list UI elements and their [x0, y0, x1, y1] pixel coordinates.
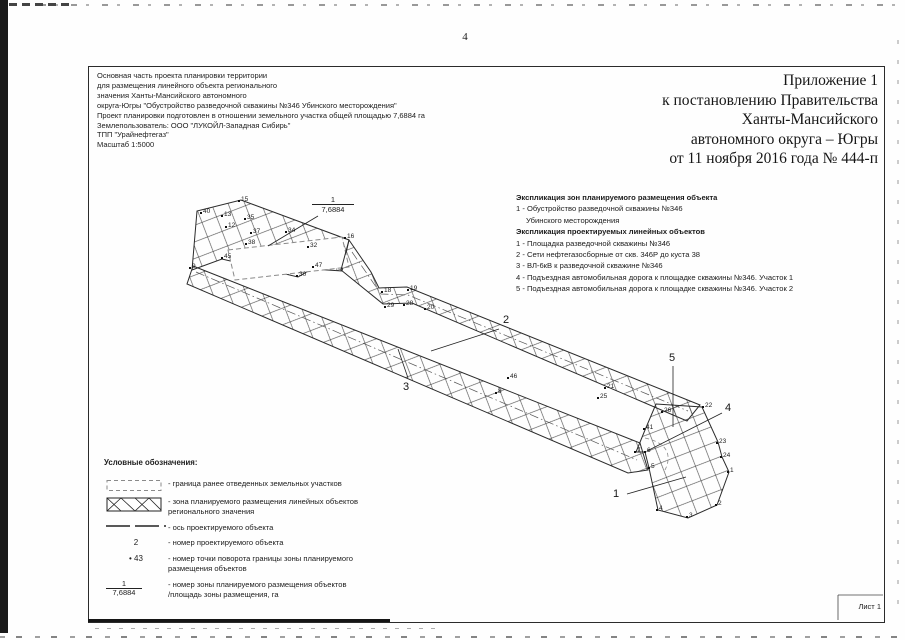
legend-label: - граница ранее отведенных земельных уча… [168, 479, 424, 490]
legend-label-line: - номер точки поворота границы зоны план… [168, 554, 424, 565]
zone-number: 1 [331, 195, 335, 204]
zone-area-label: 1 7,6884 [312, 195, 354, 214]
legend-row-axis: - ось проектируемого объекта [104, 523, 424, 534]
legend-block: Условные обозначения: - граница ранее от… [104, 458, 424, 606]
fraction-denominator: 7,6884 [106, 588, 142, 598]
legend-row-planned-zone: - зона планируемого размещения линейных … [104, 497, 424, 518]
legend-label: - номер зоны планируемого размещения объ… [168, 580, 424, 601]
legend-row-prior-boundary: - граница ранее отведенных земельных уча… [104, 479, 424, 492]
axis-line-swatch [104, 523, 168, 529]
legend-label-line: /площадь зоны размещения, га [168, 590, 424, 601]
turn-point-swatch: • 43 [104, 554, 168, 565]
legend-label: - зона планируемого размещения линейных … [168, 497, 424, 518]
zone-fraction-swatch: 1 7,6884 [104, 580, 168, 598]
legend-row-object-number: 2 - номер проектируемого объекта [104, 538, 424, 549]
hatched-rect-swatch [104, 497, 168, 512]
scanned-plan-page: 4 Основная часть проекта планировки терр… [0, 0, 905, 640]
legend-title: Условные обозначения: [104, 458, 424, 469]
leader-object-2 [431, 329, 499, 351]
zone-area-value: 7,6884 [312, 204, 354, 214]
well-pad-zone [636, 404, 729, 518]
object-number-swatch: 2 [104, 538, 168, 549]
fraction-numerator: 1 [106, 580, 142, 589]
legend-row-turn-point: • 43 - номер точки поворота границы зоны… [104, 554, 424, 575]
legend-label: - номер проектируемого объекта [168, 538, 424, 549]
dashed-rect-swatch [104, 479, 168, 492]
legend-label-line: - зона планируемого размещения линейных … [168, 497, 424, 508]
sheet-label: Лист 1 [843, 602, 881, 611]
legend-label: - номер точки поворота границы зоны план… [168, 554, 424, 575]
legend-label-line: - номер зоны планируемого размещения объ… [168, 580, 424, 591]
legend-label: - ось проектируемого объекта [168, 523, 424, 534]
legend-label-line: регионального значения [168, 507, 424, 518]
legend-label-line: размещения объектов [168, 564, 424, 575]
legend-row-zone-fraction: 1 7,6884 - номер зоны планируемого разме… [104, 580, 424, 601]
